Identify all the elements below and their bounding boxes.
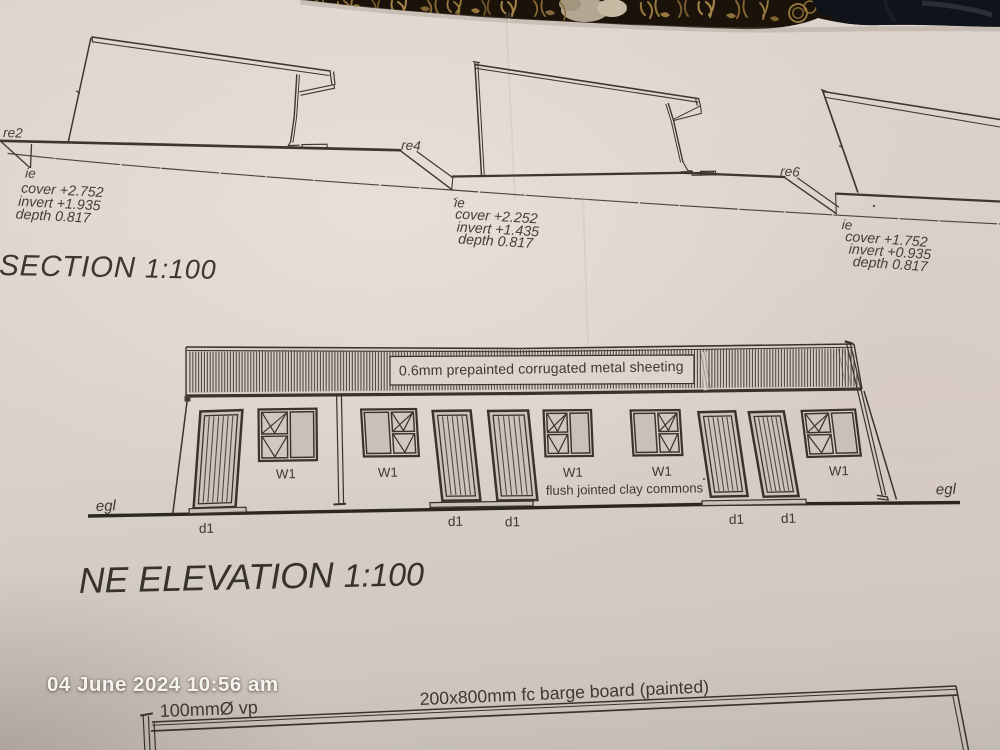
svg-text:W1: W1 [378,465,398,480]
svg-text:re6: re6 [780,164,801,180]
svg-text:re2: re2 [3,125,24,141]
svg-text:W1: W1 [652,464,672,479]
svg-text:W1: W1 [563,465,583,480]
svg-text:depth 0.817: depth 0.817 [458,232,535,252]
svg-text:SECTION 1:100: SECTION 1:100 [0,249,217,286]
svg-text:flush jointed clay commons: flush jointed clay commons [546,480,704,498]
svg-text:depth 0.817: depth 0.817 [15,207,92,227]
svg-text:d1: d1 [781,511,796,526]
svg-text:d1: d1 [729,512,744,527]
svg-text:d1: d1 [505,514,520,529]
svg-text:egl: egl [936,481,957,499]
svg-text:NE ELEVATION 1:100: NE ELEVATION 1:100 [78,552,424,601]
svg-text:d1: d1 [448,514,463,529]
svg-text:ie: ie [25,166,36,182]
svg-text:re4: re4 [401,138,421,154]
svg-text:W1: W1 [276,466,296,481]
svg-text:100mmØ vp: 100mmØ vp [159,697,258,721]
svg-text:egl: egl [96,497,117,515]
svg-text:d1: d1 [199,521,214,536]
svg-text:W1: W1 [829,463,849,478]
